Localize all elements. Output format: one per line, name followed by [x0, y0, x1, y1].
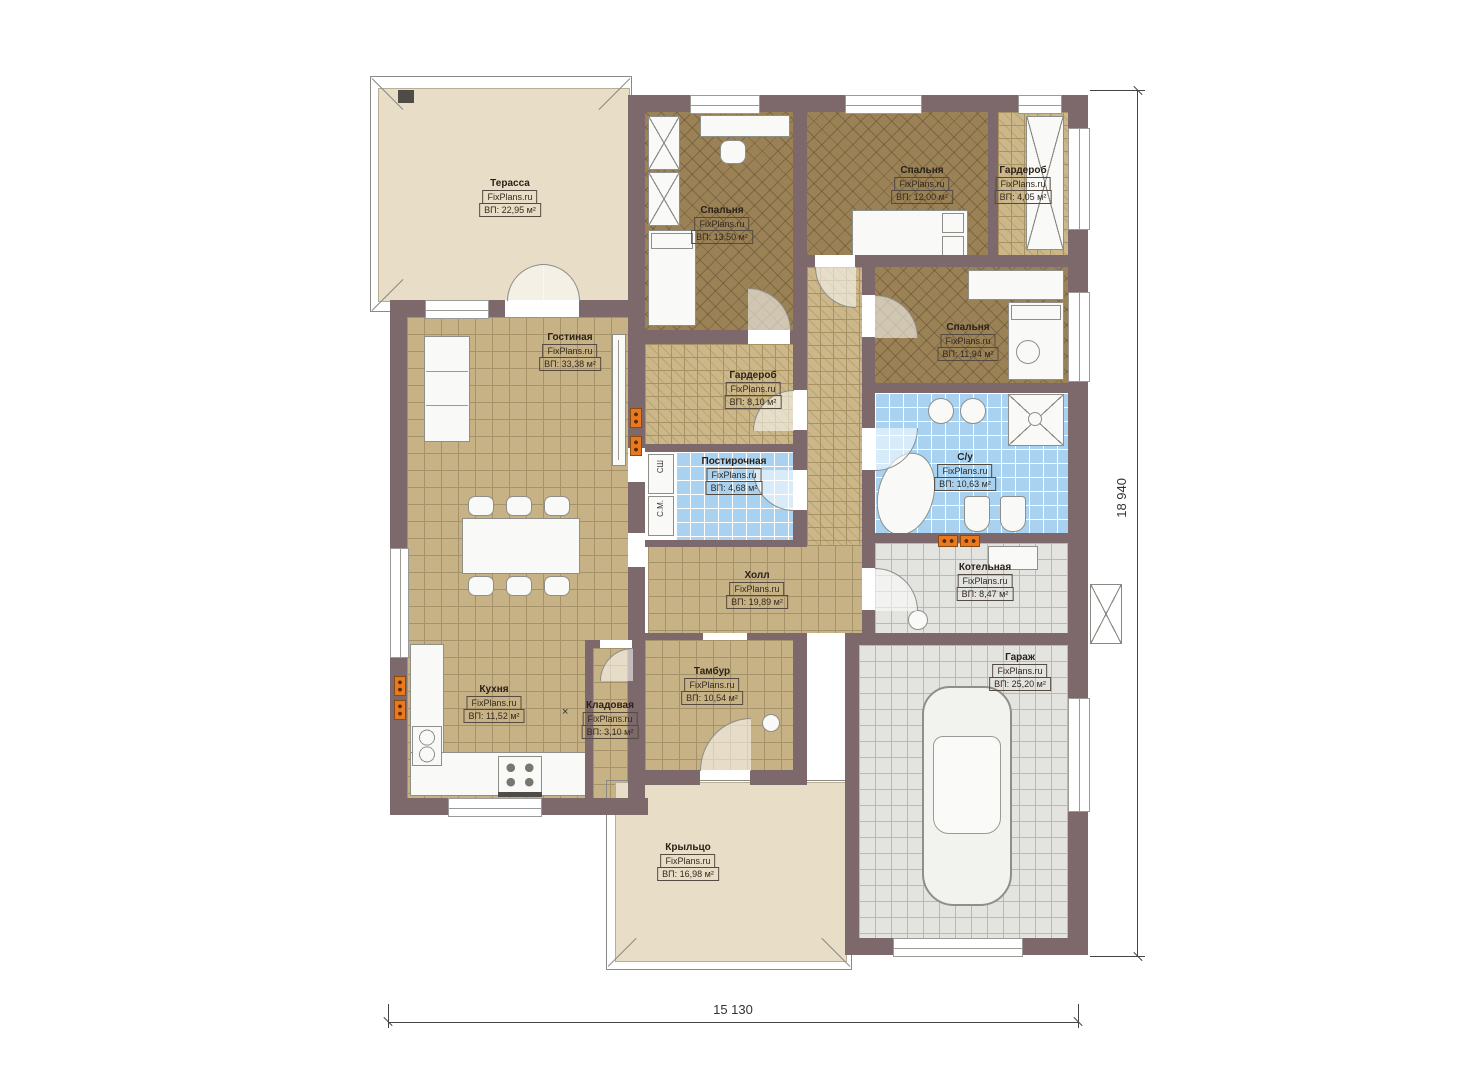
room-watermark: FixPlans.ru: [582, 712, 637, 726]
room-label-porch: Крыльцо FixPlans.ru ВП: 16,98 м²: [657, 842, 719, 881]
room-area: ВП: 10,54 м²: [681, 691, 743, 705]
sink: [960, 398, 986, 424]
wall: [793, 344, 807, 540]
room-watermark: FixPlans.ru: [706, 468, 761, 482]
side-canopy: [1090, 584, 1122, 644]
dimension-line-bottom: [388, 1022, 1078, 1023]
room-watermark: FixPlans.ru: [660, 854, 715, 868]
room-area: ВП: 4,68 м²: [706, 481, 763, 495]
room-name: Кухня: [479, 684, 508, 695]
room-name: Гараж: [1005, 652, 1035, 663]
door-opening: [748, 330, 790, 344]
sofa-cushion-line: [426, 405, 468, 406]
car: [922, 686, 1012, 906]
radiator: [394, 676, 406, 696]
dimension-extension: [1078, 1004, 1079, 1028]
wall: [845, 633, 859, 955]
shower-head: [1028, 412, 1042, 426]
room-area: ВП: 13,50 м²: [691, 230, 753, 244]
room-label-bathroom: С/у FixPlans.ru ВП: 10,63 м²: [934, 452, 996, 491]
room-label-bedroom-1: Спальня FixPlans.ru ВП: 13,50 м²: [691, 205, 753, 244]
sofa: [424, 336, 470, 442]
room-label-pantry: Кладовая FixPlans.ru ВП: 3,10 м²: [582, 700, 639, 739]
room-area: ВП: 8,47 м²: [957, 587, 1014, 601]
room-name: Терасса: [490, 178, 530, 189]
closet: [648, 116, 680, 170]
window: [390, 548, 409, 658]
sink: [928, 398, 954, 424]
room-name: Холл: [744, 570, 769, 581]
floor-hatch: [762, 714, 780, 732]
room-area: ВП: 25,20 м²: [989, 677, 1051, 691]
room-name: Спальня: [946, 322, 989, 333]
room-watermark: FixPlans.ru: [992, 664, 1047, 678]
wall: [793, 112, 807, 344]
room-label-boiler: Котельная FixPlans.ru ВП: 8,47 м²: [957, 562, 1014, 601]
room-label-hall: Холл FixPlans.ru ВП: 19,89 м²: [726, 570, 788, 609]
window: [690, 95, 760, 114]
tv-stand: [612, 334, 626, 466]
room-label-vestibule: Тамбур FixPlans.ru ВП: 10,54 м²: [681, 666, 743, 705]
window: [1068, 698, 1090, 812]
room-name: Гардероб: [999, 165, 1046, 176]
door-opening: [862, 568, 875, 610]
window: [1068, 128, 1090, 230]
sofa-cushion-line: [426, 371, 468, 372]
wall: [645, 540, 807, 547]
room-area: ВП: 11,52 м²: [463, 709, 524, 723]
closet: [968, 270, 1064, 300]
wall: [747, 633, 807, 640]
room-label-terrace: Терасса FixPlans.ru ВП: 22,95 м²: [479, 178, 541, 217]
room-watermark: FixPlans.ru: [940, 334, 995, 348]
chair: [544, 496, 570, 516]
window: [845, 95, 922, 114]
door-opening: [793, 390, 807, 430]
room-watermark: FixPlans.ru: [937, 464, 992, 478]
washer-label: С.М.: [656, 500, 665, 517]
room-name: Гостиная: [547, 332, 592, 343]
room-name: Спальня: [700, 205, 743, 216]
door-opening: [505, 300, 579, 317]
desk: [700, 115, 790, 137]
pillow: [651, 233, 693, 249]
radiator: [938, 535, 958, 547]
dimension-value-right: 18 940: [1114, 478, 1129, 518]
plant-pot: [1016, 340, 1040, 364]
wall: [793, 633, 807, 785]
bidet: [964, 496, 990, 532]
radiator: [394, 700, 406, 720]
wall: [645, 444, 793, 452]
room-watermark: FixPlans.ru: [542, 344, 597, 358]
chair: [506, 496, 532, 516]
window: [425, 300, 489, 319]
room-watermark: FixPlans.ru: [729, 582, 784, 596]
closet: [648, 172, 680, 226]
kitchen-sink: [412, 726, 442, 766]
pillow: [942, 213, 964, 233]
hall-corridor: [807, 267, 862, 545]
room-name: Спальня: [900, 165, 943, 176]
room-watermark: FixPlans.ru: [694, 217, 749, 231]
radiator: [630, 436, 642, 456]
room-name: Кладовая: [586, 700, 634, 711]
radiator: [960, 535, 980, 547]
chair: [544, 576, 570, 596]
room-area: ВП: 8,10 м²: [725, 395, 782, 409]
pillow: [1011, 305, 1061, 320]
door-opening: [862, 428, 875, 470]
door-opening: [628, 533, 645, 567]
room-watermark: FixPlans.ru: [482, 190, 537, 204]
pantry-mark: ×: [562, 706, 568, 718]
tv-line: [618, 340, 619, 460]
window: [1018, 95, 1062, 114]
room-area: ВП: 16,98 м²: [657, 867, 719, 881]
room-area: ВП: 19,89 м²: [726, 595, 788, 609]
chair: [468, 496, 494, 516]
dimension-value-bottom: 15 130: [388, 1002, 1078, 1017]
wall: [628, 770, 700, 785]
wall: [645, 633, 703, 640]
room-watermark: FixPlans.ru: [894, 177, 949, 191]
room-label-garage: Гараж FixPlans.ru ВП: 25,20 м²: [989, 652, 1051, 691]
car-cabin: [933, 736, 1001, 834]
room-label-bedroom-3: Спальня FixPlans.ru ВП: 11,94 м²: [937, 322, 998, 361]
desk-chair: [720, 140, 746, 164]
room-area: ВП: 4,05 м²: [995, 190, 1052, 204]
garage-gate: [893, 938, 1023, 957]
room-area: ВП: 22,95 м²: [479, 203, 541, 217]
door-opening: [793, 470, 807, 510]
room-area: ВП: 11,94 м²: [937, 347, 998, 361]
stove-mark: [498, 792, 542, 797]
chair: [468, 576, 494, 596]
door-opening: [815, 255, 855, 267]
door-opening: [600, 640, 632, 648]
room-area: ВП: 3,10 м²: [582, 725, 639, 739]
room-watermark: FixPlans.ru: [725, 382, 780, 396]
toilet: [1000, 496, 1026, 532]
chair: [506, 576, 532, 596]
stove: [498, 756, 542, 794]
room-label-wardrobe-1: Гардероб FixPlans.ru ВП: 4,05 м²: [995, 165, 1052, 204]
window: [1068, 292, 1090, 382]
room-label-wardrobe-2: Гардероб FixPlans.ru ВП: 8,10 м²: [725, 370, 782, 409]
room-label-kitchen: Кухня FixPlans.ru ВП: 11,52 м²: [463, 684, 524, 723]
room-name: Постирочная: [702, 456, 767, 467]
room-watermark: FixPlans.ru: [684, 678, 739, 692]
dimension-line-right: [1137, 90, 1138, 956]
dryer-label: СШ: [656, 460, 665, 473]
dining-table: [462, 518, 580, 574]
room-area: ВП: 33,38 м²: [539, 357, 601, 371]
radiator: [630, 408, 642, 428]
wall: [750, 770, 807, 785]
pillow: [942, 236, 964, 256]
room-area: ВП: 10,63 м²: [934, 477, 996, 491]
room-label-living: Гостиная FixPlans.ru ВП: 33,38 м²: [539, 332, 601, 371]
floor-drain: [908, 610, 928, 630]
room-name: Тамбур: [694, 666, 730, 677]
room-name: С/у: [957, 452, 973, 463]
wall: [845, 633, 1088, 645]
room-label-bedroom-2: Спальня FixPlans.ru ВП: 12,00 м²: [891, 165, 953, 204]
door-opening: [862, 295, 875, 337]
chimney-mark: [398, 90, 414, 103]
room-name: Котельная: [959, 562, 1011, 573]
room-name: Гардероб: [729, 370, 776, 381]
room-area: ВП: 12,00 м²: [891, 190, 953, 204]
room-watermark: FixPlans.ru: [995, 177, 1050, 191]
floor-plan: СШ С.М. × Терасса FixPlans.ru ВП: 22,95 …: [0, 0, 1474, 1080]
room-name: Крыльцо: [665, 842, 711, 853]
window: [448, 798, 542, 817]
room-watermark: FixPlans.ru: [957, 574, 1012, 588]
wall: [862, 383, 1068, 393]
room-watermark: FixPlans.ru: [466, 696, 521, 710]
room-label-laundry: Постирочная FixPlans.ru ВП: 4,68 м²: [702, 456, 767, 495]
